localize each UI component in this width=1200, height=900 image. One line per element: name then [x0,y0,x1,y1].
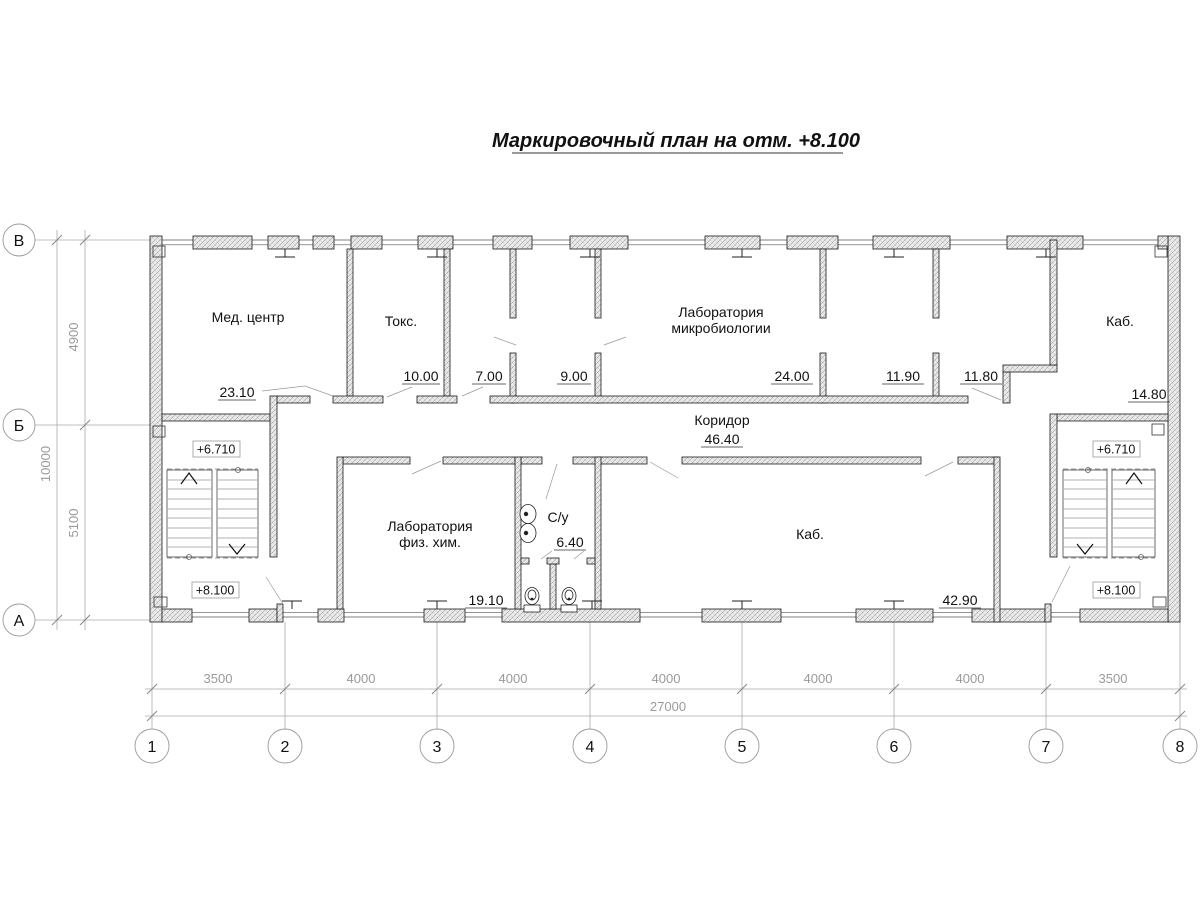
axis-col-3: 3 [433,739,442,756]
room-label-kab-top: Каб. [1106,313,1134,329]
room-area-9: 9.00 [560,368,587,384]
axis-col-5: 5 [738,739,747,756]
wall-labfiz-left [337,457,343,609]
room-label-lab-micro-2: микробиологии [671,320,770,336]
drawing-sheet: Маркировочный план на отм. +8.100 35 [0,0,1200,900]
elevation-left-upper: +6.710 [197,443,236,457]
walls-layer [150,236,1180,622]
floor-plan-canvas: Маркировочный план на отм. +8.100 35 [0,0,1200,900]
axis-col-2: 2 [281,739,290,756]
drawing-title: Маркировочный план на отм. +8.100 [492,130,860,153]
toilet-icon [524,588,540,613]
room-labels: Мед. центр 23.10 Токс. 10.00 7.00 9.00 Л… [212,304,1170,608]
corner-column-squares [153,246,1167,607]
stairs-right [1063,468,1155,560]
wall-exterior-right [1168,236,1180,622]
room-label-lab-fizhim-2: физ. хим. [399,534,461,550]
axis-row-b: Б [14,418,25,435]
room-area-7: 7.00 [475,368,502,384]
dim-bottom-2: 4000 [347,671,376,686]
stairs-left [167,468,258,560]
room-label-lab-micro-1: Лаборатория [678,304,763,320]
dim-bottom-total: 27000 [650,699,686,714]
dim-bottom-5: 4000 [804,671,833,686]
stair-down-arrow [229,544,245,554]
dim-left-2: 5100 [66,509,81,538]
dim-bottom-7: 3500 [1099,671,1128,686]
dim-left-1: 4900 [66,323,81,352]
room-label-su: С/у [548,509,569,525]
dim-bottom-1: 3500 [204,671,233,686]
elevation-right-upper: +6.710 [1097,443,1136,457]
axis-col-6: 6 [890,739,899,756]
elevation-left-lower: +8.100 [196,584,235,598]
wall-stair-left-east [270,396,277,557]
room-area-1180: 11.80 [964,368,998,384]
wall-stair-left-north [162,414,270,421]
room-area-med-center: 23.10 [219,384,254,400]
wall-su-right [595,457,601,609]
wall-exterior-left [150,236,162,622]
dim-bottom-6: 4000 [956,671,985,686]
wall-stair-right-west [1050,414,1057,557]
stair-up-arrow [1126,473,1142,484]
wall-med-toks [347,249,353,396]
dim-bottom-3: 4000 [499,671,528,686]
axis-col-7: 7 [1042,739,1051,756]
wall-kab-top-left [1050,240,1057,365]
room-label-med-center: Мед. центр [212,309,285,325]
window-glazing [162,240,1168,617]
page-title: Маркировочный план на отм. +8.100 [492,130,860,152]
elevation-right-lower: +8.100 [1097,584,1136,598]
stair-down-arrow [1077,544,1093,554]
stair-up-arrow [181,473,197,484]
room-area-su: 6.40 [556,534,583,550]
axis-row-a: А [14,613,25,630]
room-area-kab-top: 14.80 [1131,386,1166,402]
axis-row-v: В [14,233,25,250]
room-label-corridor: Коридор [694,412,750,428]
room-label-lab-fizhim-1: Лаборатория [387,518,472,534]
wall-stair-right-north [1057,414,1168,421]
toilet-icon [561,588,577,613]
room-area-corridor: 46.40 [704,431,739,447]
room-area-toks: 10.00 [403,368,438,384]
axis-col-1: 1 [148,739,157,756]
dim-bottom-4: 4000 [652,671,681,686]
door-leader-lines [262,337,1070,604]
room-area-kab-main: 42.90 [942,592,977,608]
dimension-lines [35,230,1187,729]
axis-col-8: 8 [1176,739,1185,756]
room-label-kab-main: Каб. [796,526,824,542]
wall-toks-room7 [444,249,450,396]
room-area-1190: 11.90 [886,368,920,384]
room-label-toks: Токс. [385,313,417,329]
room-area-lab-fizhim: 19.10 [468,592,503,608]
dim-left-total: 10000 [38,446,53,482]
dimension-ticks [52,235,1185,721]
room-area-lab-micro: 24.00 [774,368,809,384]
wall-kab-main-right [994,457,1000,622]
axis-col-4: 4 [586,739,595,756]
